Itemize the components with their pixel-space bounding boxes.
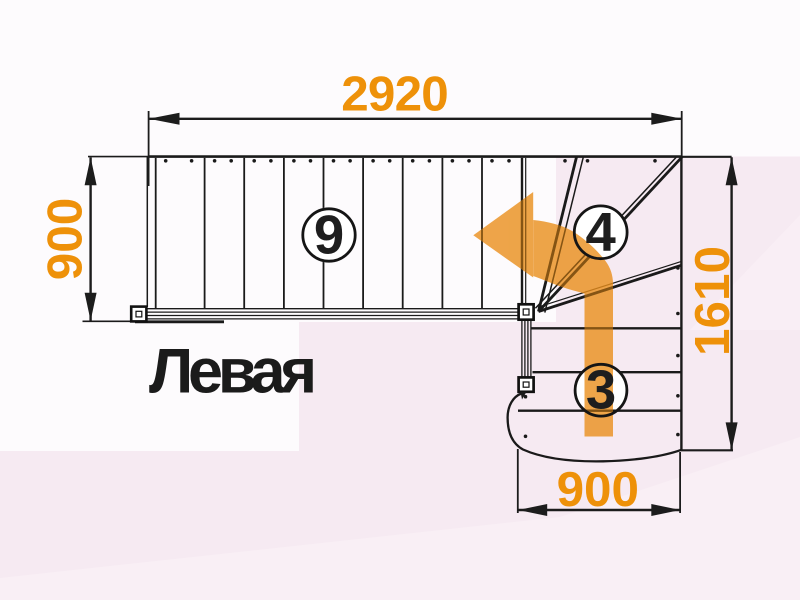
- svg-text:4: 4: [586, 202, 617, 263]
- svg-text:2920: 2920: [341, 67, 448, 122]
- svg-text:Левая: Левая: [149, 337, 313, 407]
- svg-text:900: 900: [38, 198, 93, 280]
- svg-text:900: 900: [557, 462, 639, 517]
- svg-text:1610: 1610: [685, 246, 740, 356]
- svg-text:9: 9: [314, 204, 344, 265]
- svg-text:3: 3: [586, 360, 616, 421]
